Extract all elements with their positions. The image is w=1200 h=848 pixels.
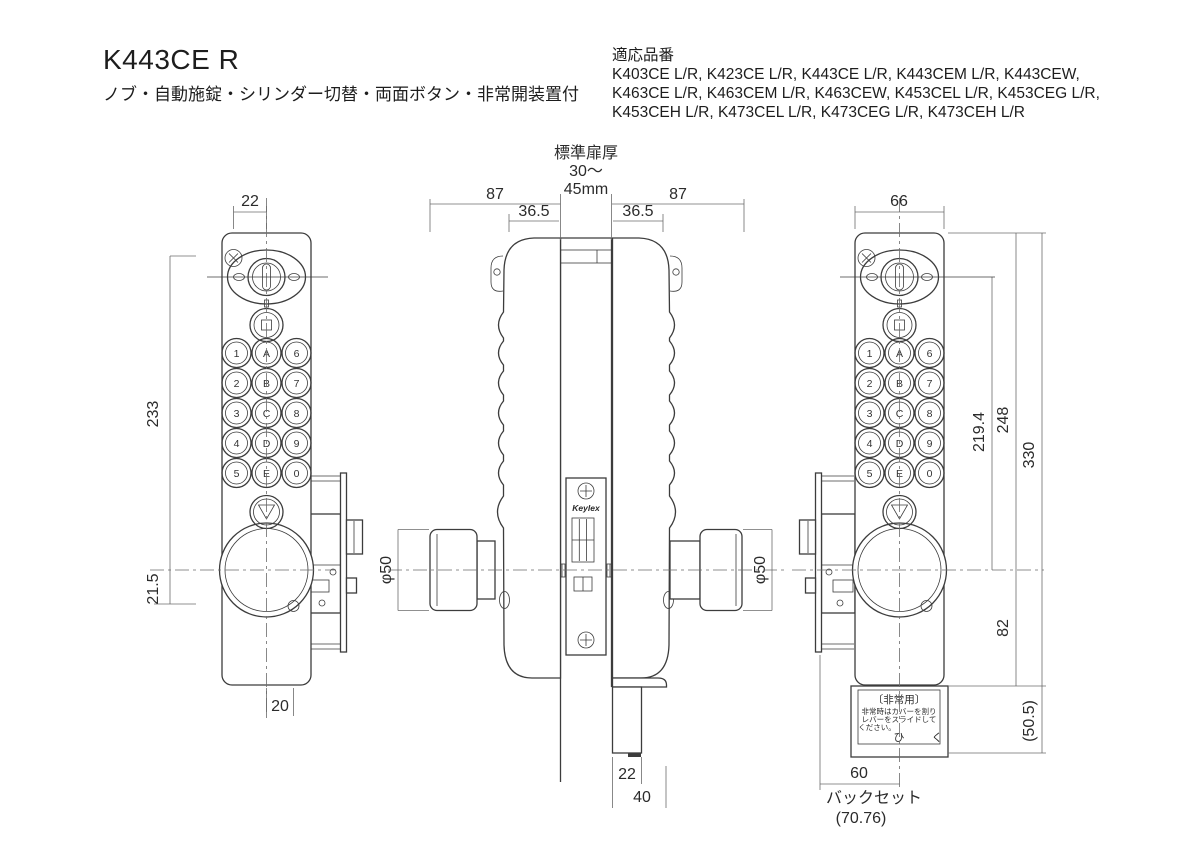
keypad-button-label: 2: [234, 378, 240, 390]
dim-total-height: 330: [1021, 442, 1038, 469]
keypad-button-label: 3: [867, 408, 873, 420]
dim-bottom-outer: 40: [633, 789, 651, 806]
dim-cyl-to-knob: 219.4: [971, 412, 988, 452]
front-view-inside: 1A62B73C84D95E0 〔非常用〕 非常時はカバーを割り レバーをスライ…: [800, 193, 1047, 827]
keypad-button-label: 8: [294, 408, 300, 420]
dim-inner-right: 36.5: [622, 203, 653, 220]
keypad-button-label: 8: [927, 408, 933, 420]
drawing-page: K443CE R ノブ・自動施錠・シリンダー切替・両面ボタン・非常開装置付 適応…: [0, 0, 1200, 848]
dim-right-width: 66: [890, 193, 908, 210]
latch-side-view-left: [307, 473, 363, 652]
keypad-button-label: 0: [927, 468, 933, 480]
backset-actual: (70.76): [836, 810, 887, 827]
keypad-button-label: 2: [867, 378, 873, 390]
door-thickness-title: 標準扉厚: [554, 144, 618, 162]
dim-depth-right: 87: [669, 186, 687, 203]
dim-left-lower: 21.5: [145, 573, 162, 604]
lock-technical-drawing: Keylex: [0, 0, 1200, 848]
through-bolt-plate: [561, 250, 612, 263]
side-section-view: Keylex: [378, 144, 772, 808]
keypad-button-label: 4: [867, 438, 873, 450]
keypad-button-label: 9: [294, 438, 300, 450]
door-thickness-unit: 45mm: [564, 181, 608, 198]
dim-left-body: 233: [145, 401, 162, 428]
dim-inner-left: 36.5: [518, 203, 549, 220]
emergency-line3: ください。: [858, 723, 896, 732]
keypad-button-label: 1: [867, 348, 873, 360]
keypad-button-label: 5: [867, 468, 873, 480]
keypad-button-label: 6: [927, 348, 933, 360]
door-thickness-range: 30〜: [569, 163, 603, 180]
mortise-case: Keylex: [556, 478, 616, 655]
keypad-button-label: 7: [294, 378, 300, 390]
keypad-button-label: 5: [234, 468, 240, 480]
keypad-button-label: 4: [234, 438, 240, 450]
dim-top-to-knob: 248: [995, 407, 1012, 434]
brand-logo: Keylex: [572, 503, 601, 513]
keypad-button-label: 3: [234, 408, 240, 420]
dim-backset: 60: [850, 765, 868, 782]
dim-bottom-inner: 22: [618, 766, 636, 783]
emergency-title: 〔非常用〕: [873, 693, 926, 706]
dim-knob-to-bottom: 82: [995, 619, 1012, 637]
backset-label: バックセット: [826, 789, 922, 807]
keypad-button-label: 1: [234, 348, 240, 360]
keypad-button-label: 0: [294, 468, 300, 480]
emergency-pull: ひ く: [894, 732, 951, 744]
dim-box-height: (50.5): [1021, 700, 1038, 742]
dim-left-top: 22: [241, 193, 259, 210]
outside-unit-profile: [491, 238, 561, 678]
front-view-outside: 1A62B73C84D95E0 22 233 21.5 20: [145, 193, 363, 716]
dim-left-bottom: 20: [271, 698, 289, 715]
latch-side-view-right: [800, 473, 856, 652]
keypad-button-label: 6: [294, 348, 300, 360]
emergency-cover-side: [613, 678, 667, 757]
keypad-button-label: 7: [927, 378, 933, 390]
emergency-label-box: 〔非常用〕 非常時はカバーを割り レバーをスライドして ください。 ひ く: [851, 686, 951, 757]
dim-depth-left: 87: [486, 186, 504, 203]
middle-dimensions: 87 36.5 36.5 87 標準扉厚 30〜 45mm φ50 φ50: [378, 144, 772, 808]
inside-unit-profile: [613, 238, 683, 678]
keypad-button-label: 9: [927, 438, 933, 450]
